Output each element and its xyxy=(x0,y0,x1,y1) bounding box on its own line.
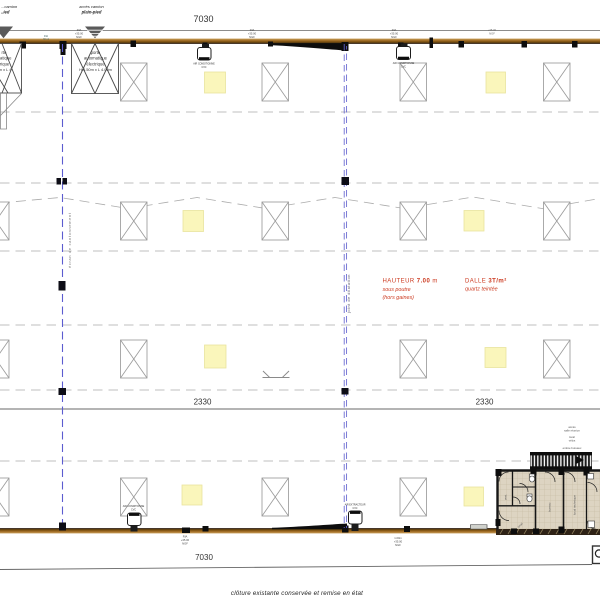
svg-text:matique: matique xyxy=(0,56,12,61)
svg-text:CVC: CVC xyxy=(201,66,206,69)
svg-text:plain-pied: plain-pied xyxy=(81,10,102,15)
svg-text:7030: 7030 xyxy=(195,553,213,562)
svg-text:NGF: NGF xyxy=(395,543,401,547)
svg-text:7030: 7030 xyxy=(193,14,213,24)
svg-text:2330: 2330 xyxy=(194,398,212,407)
svg-text:RIA: RIA xyxy=(392,28,397,32)
svg-text:quartz teintée: quartz teintée xyxy=(465,287,498,293)
svg-text:vest.: vest. xyxy=(504,494,508,500)
svg-text:joint de dilatation: joint de dilatation xyxy=(347,274,351,314)
svg-text:HAUTEUR 7.00 m: HAUTEUR 7.00 m xyxy=(383,279,438,285)
svg-text:CVC: CVC xyxy=(352,507,357,510)
svg-text:entrée bureaux: entrée bureaux xyxy=(563,446,582,450)
svg-text:0m x L 4: 0m x L 4 xyxy=(0,67,12,72)
svg-text:DALLE 3T/m²: DALLE 3T/m² xyxy=(465,278,507,285)
svg-text:RIA: RIA xyxy=(77,28,82,32)
svg-text:automatique: automatique xyxy=(84,56,108,61)
svg-text:...camion: ...camion xyxy=(1,4,18,9)
svg-text:+35.00: +35.00 xyxy=(390,31,399,35)
svg-text:2330: 2330 xyxy=(476,398,494,407)
svg-text:rte: rte xyxy=(2,50,8,55)
svg-text:CVC: CVC xyxy=(401,65,406,68)
svg-text:30 ml: 30 ml xyxy=(43,38,50,41)
svg-text:bureau: bureau xyxy=(548,502,552,512)
svg-text:électrique: électrique xyxy=(86,62,105,67)
svg-text:NGF: NGF xyxy=(249,35,255,39)
svg-text:accès camion: accès camion xyxy=(79,4,104,9)
svg-text:RIA: RIA xyxy=(250,28,255,32)
svg-text:NGF: NGF xyxy=(489,31,495,35)
svg-text:local technique: local technique xyxy=(573,495,577,515)
svg-text:H:4.50m x L 4.00m: H:4.50m x L 4.00m xyxy=(79,67,112,72)
svg-text:NGF: NGF xyxy=(182,541,188,545)
svg-text:salle réunion: salle réunion xyxy=(564,429,580,433)
svg-text:+35.00: +35.00 xyxy=(394,539,403,543)
svg-text:écran de cantonnement: écran de cantonnement xyxy=(68,212,72,268)
svg-text:NGF: NGF xyxy=(76,35,82,39)
svg-text:CVC: CVC xyxy=(131,508,136,511)
svg-text:vélos: vélos xyxy=(569,439,576,443)
svg-text:(hors gaines): (hors gaines) xyxy=(383,295,415,301)
svg-text:+35.00: +35.00 xyxy=(75,31,84,35)
svg-text:trique: trique xyxy=(0,62,10,67)
svg-text:sous poutre: sous poutre xyxy=(383,287,411,293)
svg-text:+35.00: +35.00 xyxy=(488,28,497,32)
svg-text:..ied: ..ied xyxy=(1,10,10,15)
svg-text:1.00m: 1.00m xyxy=(394,536,402,540)
svg-text:+35.00: +35.00 xyxy=(248,31,257,35)
svg-text:RIA: RIA xyxy=(183,535,188,539)
svg-text:clôture existante conservée et: clôture existante conservée et remise en… xyxy=(231,590,363,597)
svg-text:porte: porte xyxy=(91,50,101,55)
svg-text:NGF: NGF xyxy=(391,35,397,39)
svg-text:+35.00: +35.00 xyxy=(181,538,190,542)
